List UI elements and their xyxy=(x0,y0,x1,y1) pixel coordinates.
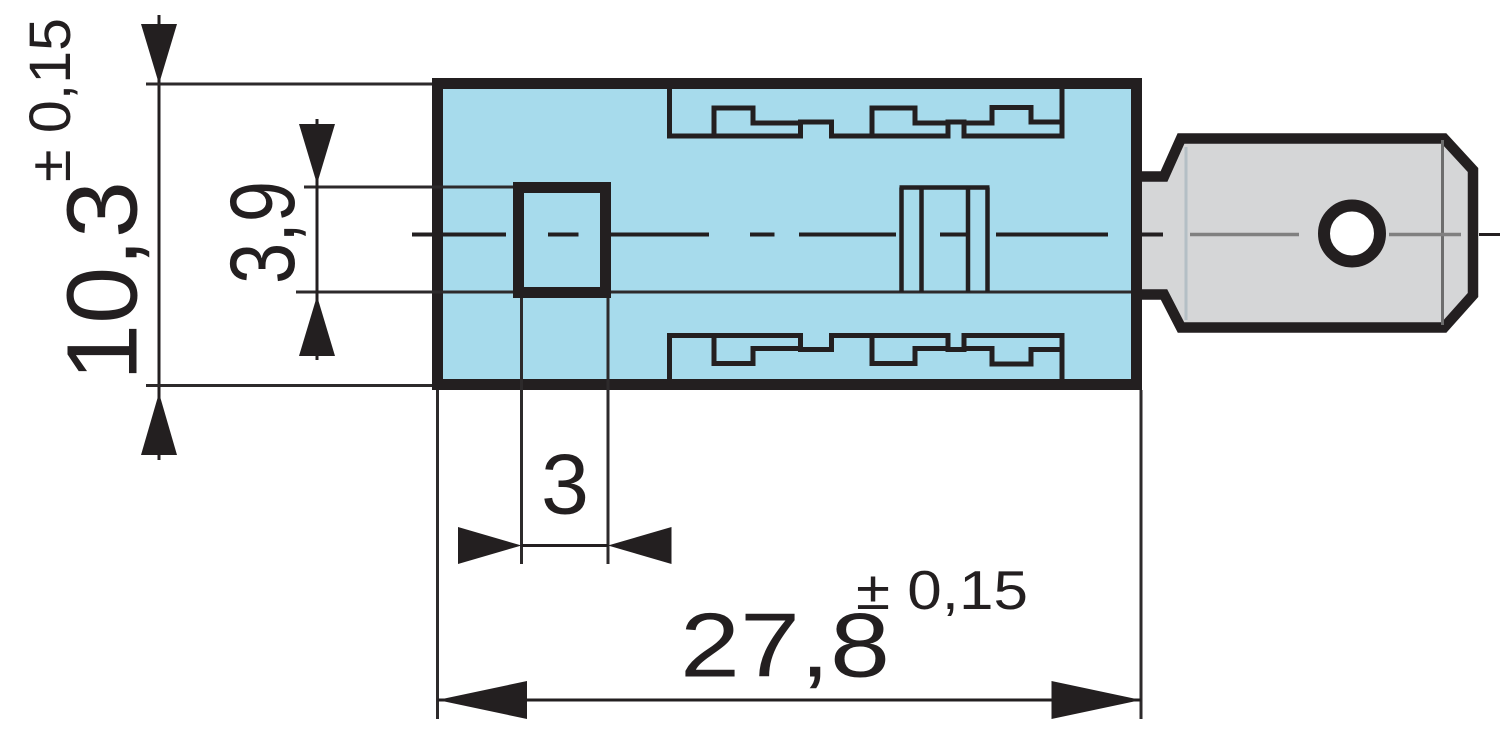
svg-text:3,9: 3,9 xyxy=(212,181,314,284)
svg-text:10,3: 10,3 xyxy=(47,181,159,381)
svg-text:± 0,15: ± 0,15 xyxy=(18,18,83,182)
svg-text:3: 3 xyxy=(541,438,589,533)
svg-text:± 0,15: ± 0,15 xyxy=(856,559,1028,621)
